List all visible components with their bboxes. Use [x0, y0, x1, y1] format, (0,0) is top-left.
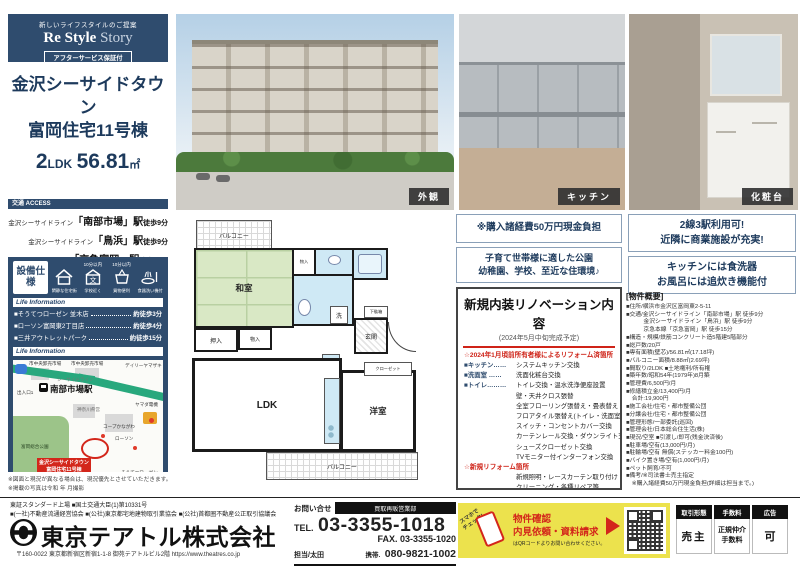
equipment-label: 設備仕様 — [13, 261, 48, 294]
ldk-room: LDK — [192, 358, 342, 452]
highlight-equipment: キッチンには食洗器 お風呂には追炊き機能付 — [628, 256, 796, 294]
property-title-box: 金沢シーサイドタウン 富岡住宅11号棟 2LDK 56.81㎡ — [8, 62, 168, 200]
renovation-item: TVモニター付インターフォン交換 — [464, 453, 614, 463]
area-map: 市中央卸売市場 市中央卸売市場 シーサイドライン 出入口1 南部市場駅 デイリー… — [13, 360, 163, 472]
renovation-item: ■キッチン……システムキッチン交換 — [464, 361, 614, 371]
photo-exterior: 外観 — [176, 14, 454, 210]
sink-icon — [298, 299, 311, 316]
storage-hall: 物入 — [238, 328, 272, 350]
contact-person: 担当/太田 — [294, 550, 324, 560]
equipment-quiet: 閑静な住宅街 — [51, 262, 77, 294]
qr-code — [624, 507, 666, 554]
renovation-item: 新規照明・レースカーテン取り付け — [464, 473, 614, 483]
store-item: ■そうてつローゼン 並木店約徒歩3分 — [13, 307, 163, 319]
brand-header: 新しいライフスタイルのご提案 Re Style Story アフターサービス保証… — [8, 14, 168, 62]
balcony-bottom: バルコニー — [266, 452, 418, 480]
bathroom — [352, 248, 388, 280]
store-item: ■三井アウトレットパーク約徒歩15分 — [13, 331, 163, 343]
svg-text:文: 文 — [89, 276, 96, 285]
shoe-cabinet: 下駄箱 — [364, 306, 388, 318]
kitchen-counter-plan — [324, 378, 340, 444]
renovation-item: ■洗面室 ……洗面化粧台交換 — [464, 371, 614, 381]
equipment-icons: 設備仕様 閑静な住宅街 10分以内 文 学校近く 10分以内 買物便利 — [13, 261, 163, 294]
house-icon — [51, 268, 77, 287]
renovation-item: クリーニング・各種リペア等 — [464, 483, 614, 490]
storage-top: 物入 — [292, 248, 316, 276]
map-notes: ※図面と現況が異なる場合は、現況優先とさせていただきます。 ※掲載の写真は令和 … — [8, 476, 178, 494]
floor-plan: バルコニー 和室 物入 洗 下駄箱 玄関 押入 物入 冷 LDK 洋室 クローゼ… — [178, 218, 454, 484]
brand-logo: Re Style Story — [8, 30, 168, 47]
deal-badges: 取引形態 売主 手数料 正規仲介手数料 広告 可 — [676, 505, 788, 554]
bathtub-icon — [358, 254, 382, 274]
school-icon: 文 — [80, 268, 106, 287]
department-label: 買取再販営業部 — [335, 502, 457, 514]
property-location-label: 金沢シーサイドタウン 富岡住宅11号棟 — [37, 458, 91, 472]
highlight-family: 子育て世帯様に適した公園 幼稚園、学校、至近な住環境♪ — [456, 247, 622, 283]
renovation-section1: ☆2024年1月頃前所有者様によるリフォーム済箇所 — [464, 351, 614, 361]
property-outline: [物件概要] ■住所/横浜市金沢区富岡東2-5-11 ■交通/金沢シーサイドライ… — [626, 291, 796, 489]
renovation-item: 全室フローリング張替え・畳表替え — [464, 402, 614, 412]
contact-block: お問い合せ 買取再販営業部 TEL. 03-3355-1018 FAX. 03-… — [294, 502, 456, 566]
life-information-header: Life Information — [13, 298, 163, 307]
promo-line2: 内見依頼・資料請求 — [513, 524, 599, 538]
entrance-door-arc — [388, 322, 416, 352]
renovation-title: 新規内装リノベーション内容 — [458, 294, 620, 332]
promo-line3: はQRコードよりお問い合わせください。 — [513, 540, 605, 547]
renovation-panel: 新規内装リノベーション内容 (2024年5月中旬完成予定) ☆2024年1月頃前… — [456, 287, 622, 490]
smartphone-icon — [475, 510, 506, 547]
vanity-mirror — [710, 34, 782, 97]
badge-transaction-type: 取引形態 売主 — [676, 505, 712, 554]
arrow-icon — [606, 517, 620, 535]
access-header: 交通 ACCESS — [8, 199, 168, 209]
entrance: 玄関 — [354, 318, 388, 354]
badge-fee: 手数料 正規仲介手数料 — [714, 505, 750, 554]
kitchen-counter — [459, 112, 625, 117]
basket-icon — [109, 268, 135, 287]
access-route: 金沢シーサイドライン「鳥浜」駅徒歩9分 — [8, 231, 168, 249]
contact-label: お問い合せ — [294, 503, 332, 514]
access-route: 金沢シーサイドライン「南部市場」駅徒歩9分 — [8, 212, 168, 230]
renovation-item: ■トイレ………トイレ交換・温水洗浄便座設置 — [464, 381, 614, 391]
toilet-room — [314, 248, 354, 276]
renovation-item: カーテンレール交換・ダウンライト交換 — [464, 432, 614, 442]
highlight-stations: 2線3駅利用可! 近隣に商業施設が充実! — [628, 214, 796, 252]
balcony-top: バルコニー — [196, 220, 272, 250]
renovation-item: シューズクローゼット交換 — [464, 443, 614, 453]
photo-label-kitchen: キッチン — [558, 188, 620, 205]
closet: クローゼット — [364, 362, 412, 376]
apartment-building — [192, 40, 438, 154]
qr-promo-box: スマホで チェック! 物件確認 内見依頼・資料請求 はQRコードよりお問い合わせ… — [458, 503, 670, 558]
renovation-item: スイッチ・コンセントカバー交換 — [464, 422, 614, 432]
bicycle — [196, 173, 210, 180]
equipment-dishwasher: 食器洗い機付 — [137, 262, 163, 294]
renovation-section2: ☆新規リフォーム箇所 — [464, 463, 614, 473]
renovation-item: 壁・天井クロス張替 — [464, 392, 614, 402]
shower-panel — [629, 14, 700, 210]
washer-space: 洗 — [330, 306, 348, 324]
interchange-icon — [15, 364, 27, 374]
red-divider — [463, 346, 615, 348]
stove-icon — [327, 425, 337, 439]
japanese-room: 和室 — [194, 248, 294, 328]
after-service-badge: アフターサービス保証付 — [44, 51, 131, 62]
vanity-cabinet — [707, 102, 790, 198]
equipment-school: 10分以内 文 学校近く — [80, 262, 106, 294]
toilet-icon — [328, 255, 341, 265]
photo-label-exterior: 外観 — [409, 188, 449, 205]
equipment-shopping: 10分以内 買物便利 — [109, 262, 135, 294]
mobile-number: 携帯. 080-9821-1002 — [366, 544, 457, 562]
renovation-subtitle: (2024年5月中旬完成予定) — [458, 333, 620, 343]
renovation-item: フロアタイル張替え(トイレ・洗面室) — [464, 412, 614, 422]
property-size: 2LDK 56.81㎡ — [8, 150, 168, 174]
kitchen-cabinets — [459, 62, 625, 151]
equipment-panel: 設備仕様 閑静な住宅街 10分以内 文 学校近く 10分以内 買物便利 — [8, 257, 168, 472]
company-address: 〒160-0022 東京都新宿区新宿1-1-8 御苑テアトルビル2階 https… — [16, 549, 240, 558]
bicycle — [216, 175, 230, 182]
company-logo — [10, 519, 37, 551]
station-icon — [39, 383, 48, 392]
hedge — [176, 152, 454, 172]
outline-title: [物件概要] — [626, 291, 796, 302]
dishes-icon — [137, 268, 163, 287]
brand-tagline: 新しいライフスタイルのご提案 — [8, 19, 168, 29]
photo-label-vanity: 化粧台 — [742, 188, 793, 205]
closet-oshiire: 押入 — [194, 328, 238, 352]
store-item: ■ローソン富岡東2丁目店約徒歩4分 — [13, 319, 163, 331]
property-location-circle — [81, 438, 109, 459]
promo-line1: 物件確認 — [513, 511, 551, 525]
footer-divider — [0, 497, 800, 498]
photo-vanity: 化粧台 — [629, 14, 798, 210]
map-header: Life Information — [13, 347, 163, 356]
western-room: 洋室 — [340, 370, 416, 452]
highlight-expenses: ※購入諸経費50万円現金負担 — [456, 214, 622, 243]
badge-advertising: 広告 可 — [752, 505, 788, 554]
company-name: 東京テアトル株式会社 — [41, 518, 276, 552]
photo-kitchen: キッチン — [459, 14, 625, 210]
property-name: 金沢シーサイドタウン 富岡住宅11号棟 — [8, 74, 168, 143]
company-block: 東京テアトル株式会社 — [10, 518, 276, 552]
